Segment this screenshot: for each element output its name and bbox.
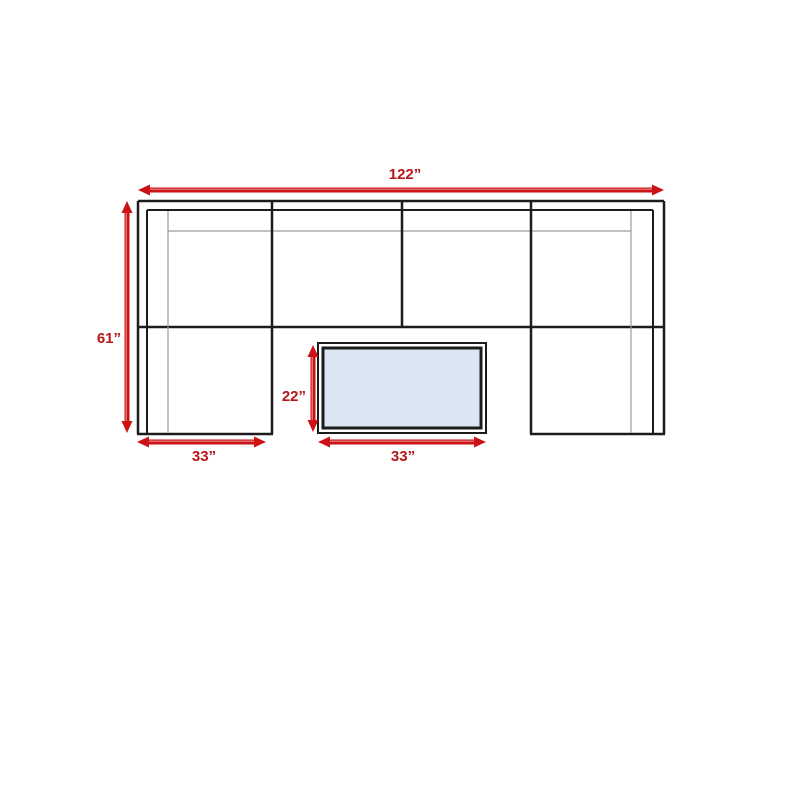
dimension-label-sofa-depth: 61”: [97, 330, 121, 347]
dimension-label-sofa-width: 122”: [389, 166, 422, 183]
dimension-label-table-depth: 22”: [282, 388, 306, 405]
dimension-label-table-width: 33”: [391, 448, 415, 465]
sectional-dimension-diagram: 122”61”33”22”33”: [0, 0, 800, 800]
dimension-label-left-arm-width: 33”: [192, 448, 216, 465]
diagram-canvas: 122”61”33”22”33”: [0, 0, 800, 800]
coffee-table-top: [323, 348, 481, 428]
